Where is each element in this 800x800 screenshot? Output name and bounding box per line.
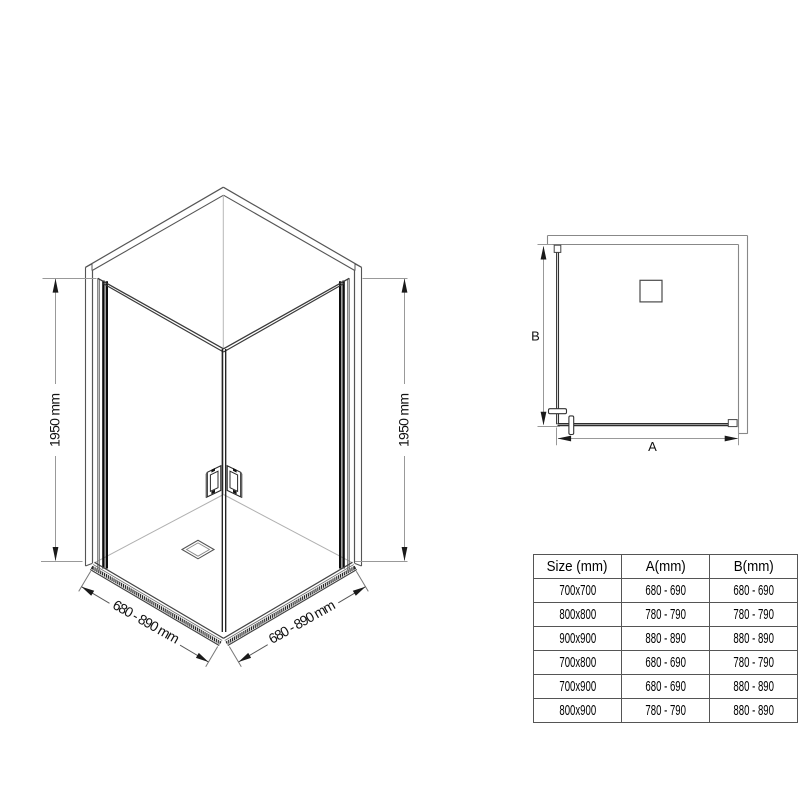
svg-text:680 - 890 mm: 680 - 890 mm bbox=[110, 596, 182, 646]
svg-text:1950 mm: 1950 mm bbox=[396, 393, 412, 447]
svg-text:B: B bbox=[531, 329, 540, 344]
svg-text:1950 mm: 1950 mm bbox=[47, 393, 63, 447]
svg-text:680 - 890 mm: 680 - 890 mm bbox=[266, 596, 338, 646]
svg-text:A: A bbox=[648, 439, 657, 454]
